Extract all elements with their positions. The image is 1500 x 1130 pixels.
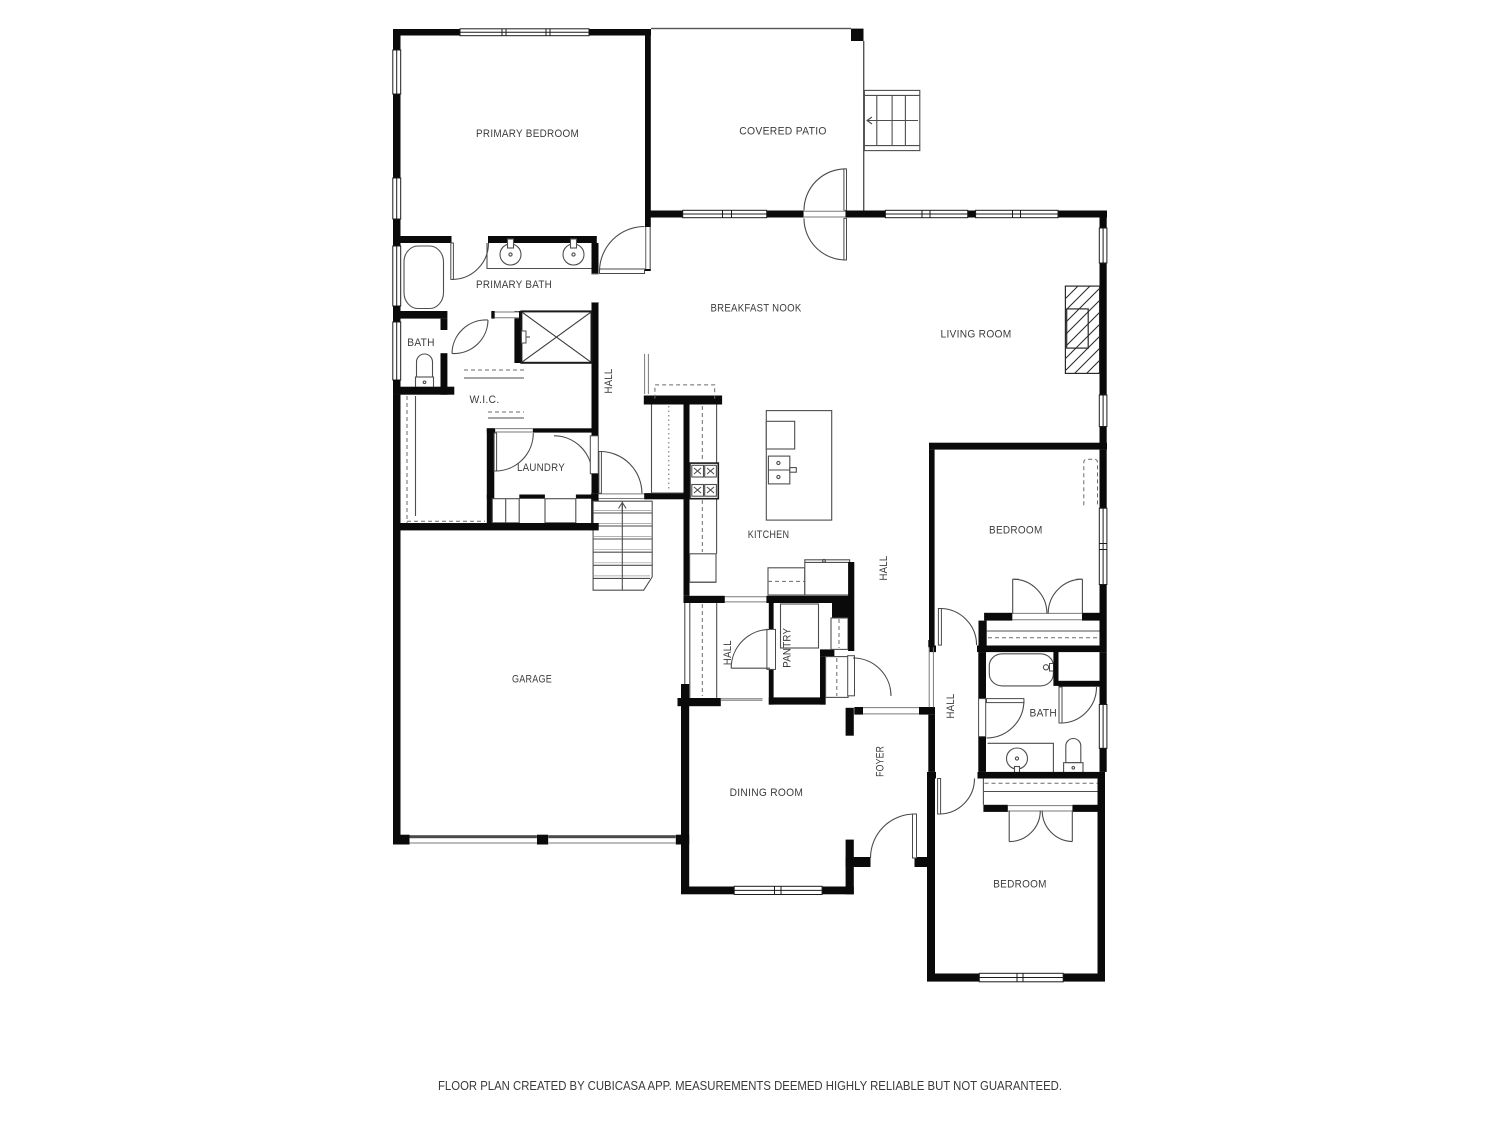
- svg-text:COVERED PATIO: COVERED PATIO: [739, 126, 827, 138]
- svg-text:FOYER: FOYER: [875, 746, 887, 777]
- svg-text:BEDROOM: BEDROOM: [993, 879, 1047, 891]
- svg-text:W.I.C.: W.I.C.: [470, 394, 500, 406]
- svg-text:FLOOR PLAN CREATED BY CUBICASA: FLOOR PLAN CREATED BY CUBICASA APP. MEAS…: [438, 1079, 1062, 1093]
- svg-text:BATH: BATH: [1030, 707, 1058, 719]
- svg-text:PANTRY: PANTRY: [781, 627, 793, 667]
- svg-text:HALL: HALL: [603, 369, 615, 394]
- svg-text:GARAGE: GARAGE: [512, 674, 552, 686]
- svg-text:LAUNDRY: LAUNDRY: [517, 462, 565, 474]
- svg-text:HALL: HALL: [945, 694, 957, 719]
- svg-text:LIVING ROOM: LIVING ROOM: [941, 329, 1012, 341]
- svg-text:KITCHEN: KITCHEN: [748, 529, 790, 541]
- svg-text:BEDROOM: BEDROOM: [989, 525, 1043, 537]
- svg-text:BREAKFAST NOOK: BREAKFAST NOOK: [711, 303, 802, 315]
- svg-text:PRIMARY BEDROOM: PRIMARY BEDROOM: [476, 128, 579, 140]
- svg-text:PRIMARY BATH: PRIMARY BATH: [476, 279, 552, 291]
- svg-text:BATH: BATH: [407, 337, 435, 349]
- svg-text:DINING ROOM: DINING ROOM: [730, 787, 804, 799]
- svg-text:HALL: HALL: [878, 556, 890, 581]
